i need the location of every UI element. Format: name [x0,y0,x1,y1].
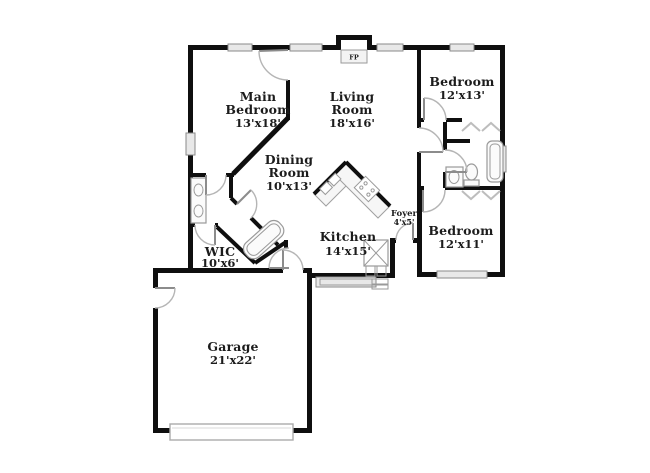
door-master-bath [206,175,226,195]
svg-text:Kitchen: Kitchen [320,229,377,244]
svg-text:14'x15': 14'x15' [325,244,371,258]
door-garage-side [155,288,175,308]
closet2-bifold-icon [462,191,480,199]
room-labels: Main Bedroom 13'x18' Living Room 18'x16'… [201,74,495,367]
window-main-bedroom-top [228,44,252,51]
double-vanity [191,178,206,223]
label-dining-room: Dining Room 10'x13' [265,152,314,193]
svg-text:10'x13': 10'x13' [266,179,312,193]
window-bedroom1-top [450,44,474,51]
label-bedroom-top-right: Bedroom 12'x13' [429,74,494,102]
label-garage: Garage 21'x22' [207,339,258,367]
window-main-bedroom-left [186,133,195,155]
label-main-bedroom: Main Bedroom 13'x18' [225,89,290,130]
toilet-tank [464,180,479,186]
window-living-right [377,44,403,51]
label-bedroom-bottom-right: Bedroom 12'x11' [428,223,493,251]
svg-text:12'x11': 12'x11' [438,237,484,251]
fireplace-label: FP [349,54,359,62]
door-hallway [419,128,443,152]
label-kitchen: Kitchen 14'x15' [320,229,377,258]
svg-text:13'x18': 13'x18' [235,116,281,130]
window-living-left [290,44,322,51]
svg-text:Garage: Garage [207,339,258,354]
window-kitchen-box [316,277,376,287]
door-wic [195,225,215,245]
svg-text:Bedroom: Bedroom [225,102,290,117]
svg-text:10'x6': 10'x6' [201,256,239,270]
svg-text:21'x22': 21'x22' [210,353,256,367]
svg-text:12'x13': 12'x13' [439,88,485,102]
svg-text:4'x5': 4'x5' [394,217,415,227]
svg-text:Bedroom: Bedroom [428,223,493,238]
svg-text:Bedroom: Bedroom [429,74,494,89]
label-wic: WIC 10'x6' [201,244,239,270]
hall-bath-fixtures [446,141,503,187]
fireplace-bump [336,35,372,50]
label-living-room: Living Room 18'x16' [329,89,375,130]
door-bedroom2 [423,190,445,212]
floor-plan-page: FP [0,0,650,473]
fireplace: FP [341,50,367,63]
label-foyer: Foyer 4'x5' [391,209,418,227]
svg-text:18'x16': 18'x16' [329,116,375,130]
svg-text:Room: Room [331,102,372,117]
closet1-bifold-icon [482,123,500,131]
closet2-bifold-icon [482,191,500,199]
kitchen-counter [314,162,390,218]
door-hall-diagonal [237,190,257,218]
closet1-bifold-icon [462,123,480,131]
garage-door [170,424,293,440]
door-main-bedroom [259,50,288,80]
window-bedroom2-bottom [437,271,487,278]
svg-text:Room: Room [268,165,309,180]
floor-plan-drawing: FP [0,0,650,473]
bathtub-icon [487,141,503,182]
